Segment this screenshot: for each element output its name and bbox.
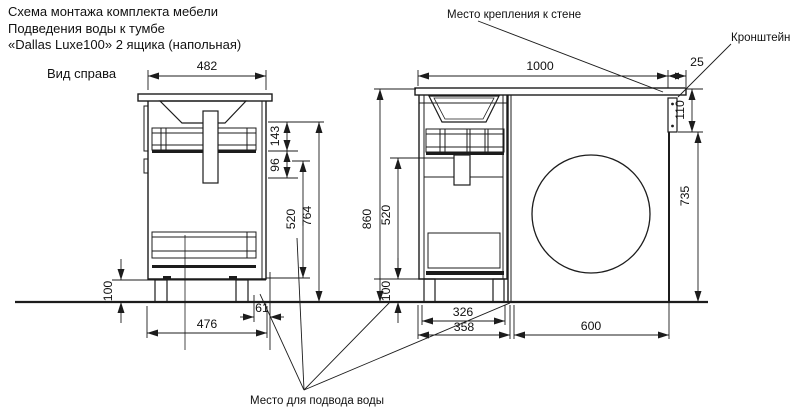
dim-front-overhang: 25 bbox=[668, 55, 704, 87]
dim-label: 100 bbox=[101, 281, 115, 302]
title-line-3: «Dallas Luxe100» 2 ящика (напольная) bbox=[8, 37, 241, 52]
dim-niche-height: 735 bbox=[678, 132, 698, 302]
side-lower-drawer-rail bbox=[152, 265, 256, 268]
front-drain-pipe bbox=[454, 155, 470, 185]
front-view-cabinet bbox=[415, 88, 686, 302]
dim-label: 326 bbox=[453, 305, 474, 319]
side-leg-front bbox=[155, 280, 167, 302]
dim-side-water-offset: 61 bbox=[240, 272, 284, 350]
dim-label: 860 bbox=[360, 209, 374, 230]
annotations: Место крепления к стене Кронштейн Место … bbox=[250, 9, 790, 407]
front-leg-left bbox=[424, 279, 435, 302]
side-view-cabinet bbox=[112, 94, 272, 302]
front-lower-opening bbox=[428, 233, 500, 268]
dim-label: 600 bbox=[581, 319, 602, 333]
dim-label: 520 bbox=[284, 209, 298, 230]
wall-mount-label: Место крепления к стене bbox=[447, 9, 581, 21]
dim-label: 764 bbox=[300, 206, 314, 227]
dim-front-total-height: 860 bbox=[360, 89, 416, 302]
dim-label: 476 bbox=[197, 317, 218, 331]
dim-label: 96 bbox=[268, 158, 282, 172]
dim-label: 1000 bbox=[526, 59, 554, 73]
dim-label: 735 bbox=[678, 186, 692, 207]
dim-label: 100 bbox=[379, 281, 393, 302]
side-leg-plate-back bbox=[229, 276, 237, 280]
front-countertop bbox=[415, 88, 686, 95]
dimensions: 482 143 96 520 764 100 bbox=[101, 55, 704, 350]
bracket-screw-bottom bbox=[671, 125, 674, 128]
drawing-sheet: Схема монтажа комплекта мебели Подведени… bbox=[0, 0, 800, 412]
water-supply-label: Место для подвода воды bbox=[250, 395, 384, 407]
dim-label: 482 bbox=[197, 59, 218, 73]
side-countertop bbox=[138, 94, 272, 101]
side-leg-plate-front bbox=[163, 276, 171, 280]
dim-side-leg-height: 100 bbox=[101, 259, 121, 323]
dim-label: 25 bbox=[690, 55, 704, 69]
side-drain-pipe bbox=[203, 111, 218, 183]
dim-label: 110 bbox=[673, 100, 687, 120]
assembly-diagram: Схема монтажа комплекта мебели Подведени… bbox=[0, 0, 800, 412]
dim-side-batten-offset: 143 bbox=[268, 122, 324, 151]
dim-front-leg-height: 100 bbox=[379, 258, 398, 323]
wall-mount-leader bbox=[478, 21, 663, 92]
dim-front-drawer-zone: 520 bbox=[374, 158, 454, 279]
side-lower-drawer bbox=[152, 232, 256, 258]
dim-side-top-width: 482 bbox=[148, 59, 266, 90]
dim-label: 143 bbox=[268, 126, 282, 147]
front-sink-basin-inner bbox=[434, 98, 494, 119]
dim-side-batten-height: 96 bbox=[268, 151, 298, 178]
title-line-1: Схема монтажа комплекта мебели bbox=[8, 4, 218, 19]
front-bottom-rail bbox=[426, 271, 504, 275]
dim-label: 61 bbox=[255, 301, 269, 315]
title-line-2: Подведения воды к тумбе bbox=[8, 21, 165, 36]
front-leg-right bbox=[493, 279, 504, 302]
dim-label: 520 bbox=[379, 205, 393, 226]
front-drawer bbox=[426, 129, 504, 152]
bracket-label: Кронштейн bbox=[731, 32, 790, 44]
dim-side-bottom-width: 476 bbox=[147, 306, 267, 338]
view-label: Вид справа bbox=[47, 66, 117, 81]
washing-machine-door bbox=[532, 155, 650, 273]
side-leg-back bbox=[236, 280, 248, 302]
dim-front-countertop-width: 1000 bbox=[418, 59, 668, 88]
dim-niche-width: 600 bbox=[514, 302, 669, 339]
